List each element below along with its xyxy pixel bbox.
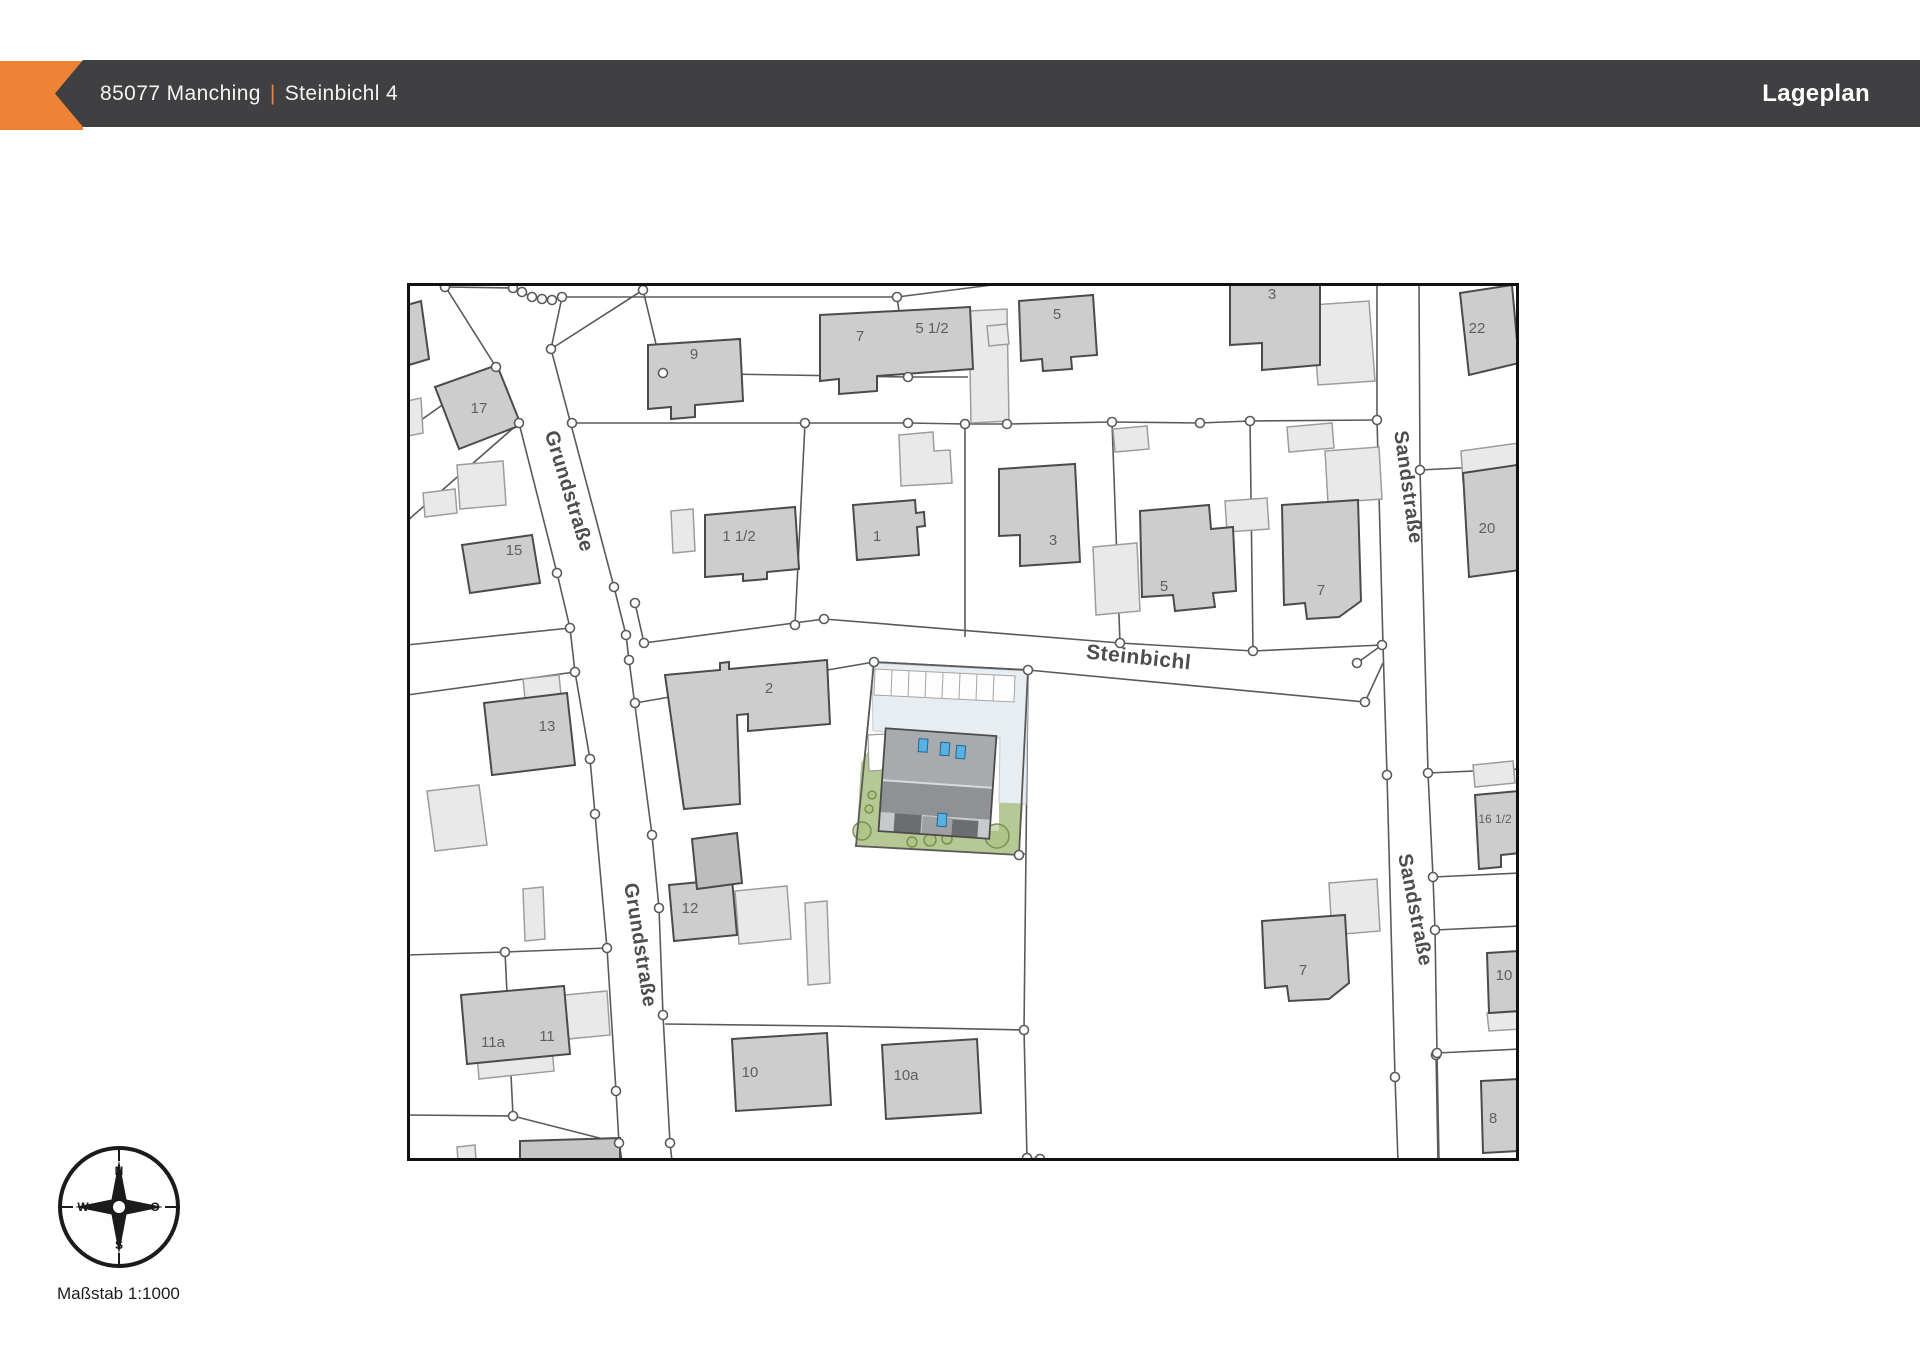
subject-property-layer: [853, 662, 1028, 855]
boundary-point: [1020, 1026, 1029, 1035]
boundary-point: [640, 639, 649, 648]
boundary-point: [1015, 851, 1024, 860]
house-number-label: 15: [506, 542, 523, 559]
building: [520, 1138, 620, 1161]
house-number-label: 17: [471, 400, 488, 417]
house-number-label: 7: [1299, 962, 1307, 979]
garden-tree: [907, 837, 917, 847]
house-number-label: 5: [1053, 306, 1061, 323]
outbuilding: [1287, 423, 1334, 452]
house-number-label: 13: [539, 718, 556, 735]
boundary-point: [1433, 1049, 1442, 1058]
boundary-point: [1378, 641, 1387, 650]
boundary-point: [492, 363, 501, 372]
compass-label-east: O: [150, 1200, 159, 1214]
boundary-point: [870, 658, 879, 667]
page-title: 85077 Manching|Steinbichl 4: [100, 82, 398, 106]
house-number-label: 5 1/2: [915, 320, 948, 337]
compass-rose: N O S W: [53, 1141, 185, 1273]
site-plan-svg: 17975 1/253221513211 1/23572016 1/210871…: [407, 283, 1519, 1161]
boundary-point: [1361, 698, 1370, 707]
boundary-point: [625, 656, 634, 665]
outbuilding: [987, 324, 1009, 346]
skylight: [918, 739, 928, 753]
house-number-label: 11: [539, 1028, 555, 1045]
outbuilding: [1487, 1011, 1519, 1031]
outbuilding: [423, 489, 457, 517]
plan-type-title: Lageplan: [1762, 80, 1870, 108]
boundary-point: [566, 624, 575, 633]
house-number-label: 20: [1479, 520, 1496, 537]
boundary-point: [801, 419, 810, 428]
outbuilding: [1325, 447, 1382, 503]
garden-tree: [853, 822, 871, 840]
title-street: Steinbichl 4: [285, 82, 398, 105]
building: [1481, 1079, 1519, 1153]
outbuilding: [565, 991, 610, 1039]
boundary-point: [893, 293, 902, 302]
boundary-point: [904, 419, 913, 428]
boundary-point: [615, 1139, 624, 1148]
boundary-point: [631, 599, 640, 608]
house-number-label: 10: [1496, 967, 1513, 984]
outbuilding: [805, 901, 830, 985]
boundary-point: [622, 631, 631, 640]
outbuilding: [1312, 301, 1375, 385]
boundary-point: [518, 288, 527, 297]
outbuilding: [523, 887, 545, 941]
outbuilding: [1473, 761, 1515, 787]
boundary-point: [655, 904, 664, 913]
house-number-label: 7: [856, 328, 864, 345]
boundary-point: [610, 583, 619, 592]
outbuilding: [1113, 426, 1149, 452]
boundary-point: [1353, 659, 1362, 668]
garden-tree: [868, 791, 876, 799]
boundary-point: [603, 944, 612, 953]
skylight: [956, 745, 966, 759]
outbuilding: [427, 785, 487, 851]
garden-tree: [865, 805, 873, 813]
boundary-point: [538, 295, 547, 304]
house-number-label: 16 1/2: [1478, 812, 1512, 826]
boundary-point: [509, 1112, 518, 1121]
house-number-label: 2: [765, 680, 773, 697]
house-number-label: 10: [742, 1064, 759, 1081]
boundary-point: [1249, 647, 1258, 656]
boundary-point: [553, 569, 562, 578]
boundary-point: [659, 369, 668, 378]
skylight: [940, 742, 950, 756]
house-number-label: 12: [682, 900, 699, 917]
house-number-label: 9: [690, 346, 698, 363]
boundary-point: [1391, 1073, 1400, 1082]
boundary-point: [1196, 419, 1205, 428]
boundary-point: [548, 296, 557, 305]
house-number-label: 8: [1489, 1110, 1497, 1127]
boundary-point: [791, 621, 800, 630]
boundary-point: [586, 755, 595, 764]
boundary-point: [547, 345, 556, 354]
house-number-label: 22: [1469, 320, 1486, 337]
boundary-point: [1373, 416, 1382, 425]
boundary-point: [501, 948, 510, 957]
compass-hub: [113, 1201, 125, 1213]
building: [1282, 500, 1361, 619]
compass-svg: N O S W: [53, 1141, 185, 1273]
building: [692, 833, 742, 889]
header-bar: 85077 Manching|Steinbichl 4 Lageplan: [55, 60, 1920, 127]
boundary-point: [904, 373, 913, 382]
boundary-point: [568, 419, 577, 428]
building: [484, 693, 575, 775]
house-number-label: 1 1/2: [722, 528, 755, 545]
outbuilding: [457, 461, 506, 509]
house-number-label: 1: [873, 528, 881, 545]
boundary-point: [528, 293, 537, 302]
outbuilding: [1093, 543, 1140, 615]
skylight: [937, 813, 947, 827]
boundary-point: [1246, 417, 1255, 426]
boundary-point: [659, 1011, 668, 1020]
boundary-point: [1424, 769, 1433, 778]
house-number-label: 10a: [893, 1067, 919, 1084]
boundary-point: [591, 810, 600, 819]
boundary-point: [1108, 418, 1117, 427]
building: [853, 500, 925, 560]
compass-label-south: S: [115, 1238, 123, 1252]
house-number-label: 3: [1268, 286, 1276, 303]
title-separator: |: [261, 82, 285, 105]
outbuilding: [671, 509, 695, 553]
boundary-point: [961, 420, 970, 429]
boundary-point: [1024, 666, 1033, 675]
outbuilding: [735, 886, 791, 944]
house-number-label: 3: [1049, 532, 1057, 549]
house-number-label: 5: [1160, 578, 1168, 595]
boundary-point: [1003, 420, 1012, 429]
title-plz-city: 85077 Manching: [100, 82, 261, 105]
boundary-point: [571, 668, 580, 677]
boundary-point: [820, 615, 829, 624]
boundary-point: [1431, 926, 1440, 935]
boundary-point: [631, 699, 640, 708]
boundary-point: [515, 419, 524, 428]
boundary-point: [558, 293, 567, 302]
house-number-label: 11a: [481, 1034, 506, 1051]
boundary-point: [1383, 771, 1392, 780]
house-number-label: 7: [1317, 582, 1325, 599]
page: { "header": { "plz_city": "85077 Manchin…: [0, 0, 1920, 1357]
boundary-point: [648, 831, 657, 840]
building: [462, 535, 540, 593]
building: [461, 986, 570, 1064]
boundary-point: [639, 286, 648, 295]
subject-house: [879, 728, 997, 838]
scale-label: Maßstab 1:1000: [57, 1284, 180, 1304]
boundary-point: [666, 1139, 675, 1148]
boundary-point: [1429, 873, 1438, 882]
site-plan: 17975 1/253221513211 1/23572016 1/210871…: [407, 283, 1519, 1161]
compass-label-west: W: [77, 1200, 89, 1214]
compass-label-north: N: [115, 1164, 124, 1178]
boundary-point: [612, 1087, 621, 1096]
